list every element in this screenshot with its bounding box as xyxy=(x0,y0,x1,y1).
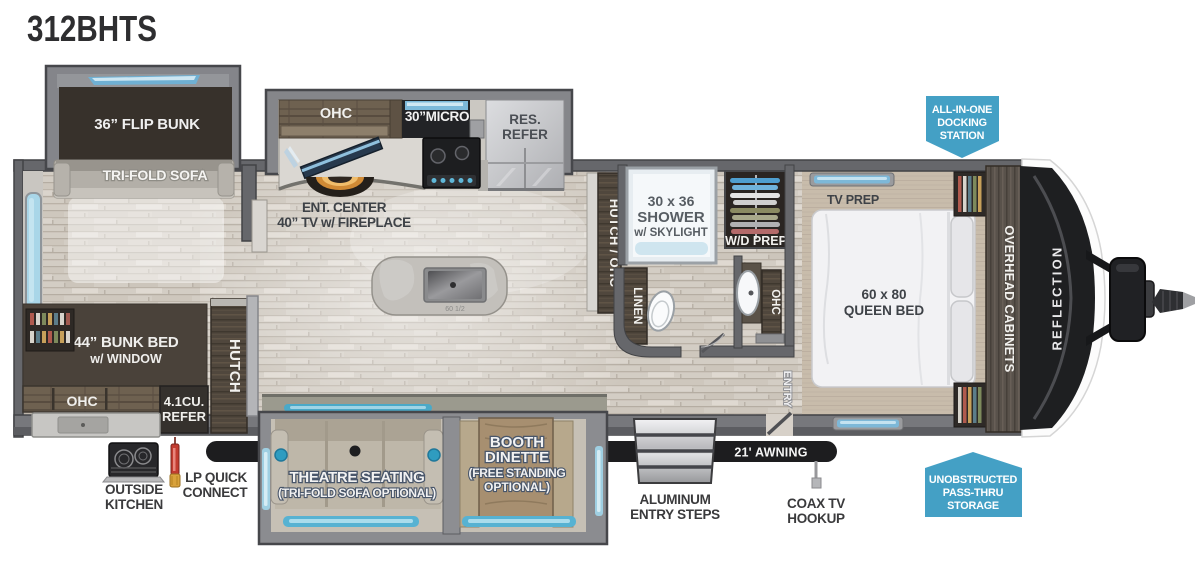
svg-text:UNOBSTRUCTED: UNOBSTRUCTED xyxy=(929,474,1018,486)
svg-text:RES.: RES. xyxy=(509,112,541,127)
svg-text:OHC: OHC xyxy=(769,289,781,315)
svg-text:OPTIONAL): OPTIONAL) xyxy=(484,480,550,494)
svg-text:LINEN: LINEN xyxy=(631,287,645,325)
svg-text:REFER: REFER xyxy=(162,409,207,424)
svg-text:CONNECT: CONNECT xyxy=(183,485,249,500)
svg-text:30”MICRO: 30”MICRO xyxy=(405,109,469,124)
svg-text:60 1/2: 60 1/2 xyxy=(445,306,465,313)
svg-text:LP QUICK: LP QUICK xyxy=(185,470,247,485)
svg-text:36” FLIP BUNK: 36” FLIP BUNK xyxy=(94,116,200,133)
svg-text:SHOWER: SHOWER xyxy=(637,209,705,226)
svg-text:STORAGE: STORAGE xyxy=(947,500,999,512)
svg-text:DINETTE: DINETTE xyxy=(485,449,549,466)
svg-text:REFLECTION: REFLECTION xyxy=(1049,245,1064,350)
svg-text:312BHTS: 312BHTS xyxy=(27,8,157,49)
svg-text:4.1CU.: 4.1CU. xyxy=(164,394,204,409)
svg-text:THEATRE SEATING: THEATRE SEATING xyxy=(290,469,425,486)
svg-text:w/ SKYLIGHT: w/ SKYLIGHT xyxy=(633,227,707,239)
svg-text:ENT. CENTER: ENT. CENTER xyxy=(302,200,387,215)
svg-text:W/D PREP: W/D PREP xyxy=(725,234,787,248)
svg-text:ALL-IN-ONE: ALL-IN-ONE xyxy=(932,104,992,116)
svg-text:60 x 80: 60 x 80 xyxy=(861,287,906,302)
svg-text:HOOKUP: HOOKUP xyxy=(787,511,845,526)
svg-text:ALUMINUM: ALUMINUM xyxy=(639,492,710,507)
svg-text:21' AWNING: 21' AWNING xyxy=(734,446,807,460)
svg-text:DOCKING: DOCKING xyxy=(937,117,987,129)
svg-text:44” BUNK BED: 44” BUNK BED xyxy=(73,334,178,351)
svg-text:OHC: OHC xyxy=(320,106,353,122)
svg-text:STATION: STATION xyxy=(940,130,985,142)
svg-text:(FREE STANDING: (FREE STANDING xyxy=(469,466,566,480)
svg-text:30 x 36: 30 x 36 xyxy=(648,193,695,209)
svg-text:REFER: REFER xyxy=(502,127,548,142)
svg-text:TV PREP: TV PREP xyxy=(827,193,879,207)
svg-text:ENTRY STEPS: ENTRY STEPS xyxy=(630,507,720,522)
svg-text:KITCHEN: KITCHEN xyxy=(105,497,163,512)
svg-text:OUTSIDE: OUTSIDE xyxy=(105,482,163,497)
svg-text:HUTCH: HUTCH xyxy=(226,339,243,393)
svg-text:40” TV w/ FIREPLACE: 40” TV w/ FIREPLACE xyxy=(277,215,411,230)
svg-text:w/ WINDOW: w/ WINDOW xyxy=(89,352,162,366)
svg-text:OVERHEAD CABINETS: OVERHEAD CABINETS xyxy=(1002,225,1017,372)
svg-text:(TRI-FOLD SOFA OPTIONAL): (TRI-FOLD SOFA OPTIONAL) xyxy=(278,486,436,500)
svg-text:COAX TV: COAX TV xyxy=(787,496,845,511)
svg-text:OHC: OHC xyxy=(66,393,97,409)
svg-text:QUEEN BED: QUEEN BED xyxy=(844,303,925,318)
svg-text:ENTRY: ENTRY xyxy=(781,371,793,409)
svg-text:TRI-FOLD SOFA: TRI-FOLD SOFA xyxy=(103,167,208,183)
svg-text:PASS-THRU: PASS-THRU xyxy=(943,487,1004,499)
